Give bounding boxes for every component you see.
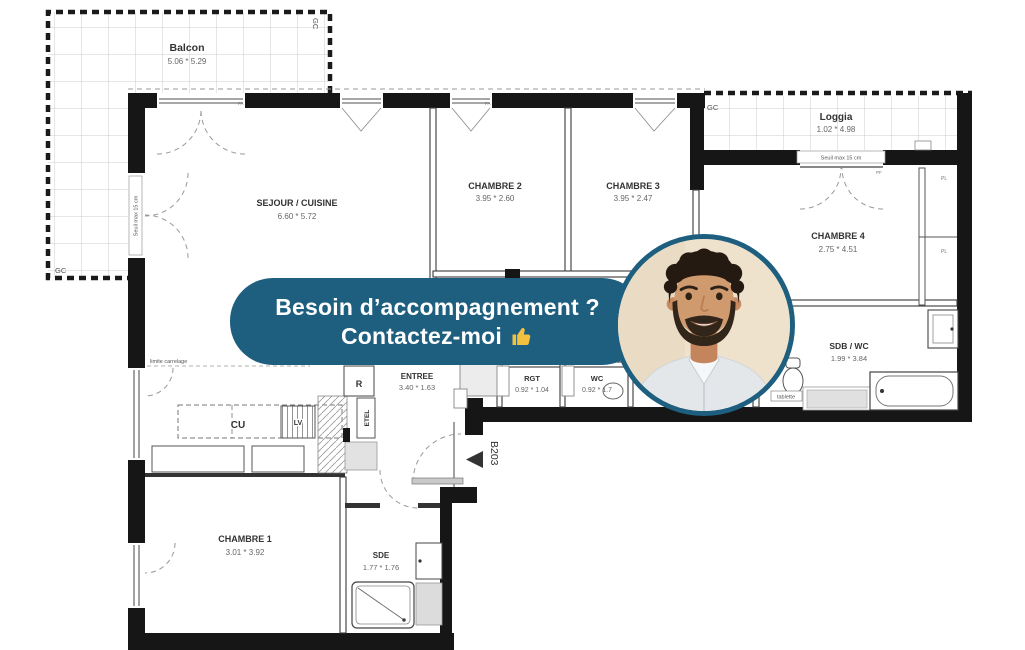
sdb-washbasin-bowl xyxy=(933,315,953,343)
chambre4-window-swing-left xyxy=(800,168,841,209)
shower-drain xyxy=(402,618,406,622)
loggia: Seuil max 15 cm Loggia 1.02 * 4.98 GC PF xyxy=(704,93,972,175)
balcony-door-swing-top xyxy=(145,173,188,216)
pf-window-label: PF xyxy=(876,170,882,175)
unit-number-label: B203 xyxy=(488,441,500,466)
sejour-name: SEJOUR / CUISINE xyxy=(256,198,337,208)
kitchen-counter-1 xyxy=(152,446,244,472)
toilet-bowl xyxy=(783,368,803,394)
balcony-door-swing-bottom xyxy=(145,215,188,258)
gc-label-balcony-bottom: GC xyxy=(55,266,67,275)
sdb-shelf xyxy=(807,390,867,408)
chambre2-dims: 3.95 * 2.60 xyxy=(476,194,515,203)
pl-label-1: PL xyxy=(941,176,947,182)
fa-window-label-1: FA xyxy=(238,101,244,106)
gc-label-balcony-top: GC xyxy=(311,18,320,30)
sde-washbasin-tap xyxy=(418,559,421,562)
balcony: Balcon 5.06 * 5.29 GC GC xyxy=(48,12,330,278)
balcony-door-threshold-label: Seuil max 15 cm xyxy=(134,195,140,236)
wall-right xyxy=(957,93,972,422)
entree-name: ENTREE xyxy=(401,372,434,381)
partition-chambre2-chambre3 xyxy=(565,108,571,274)
contact-banner[interactable]: Besoin d’accompagnement ? Contactez-moi xyxy=(230,278,645,365)
agent-photo xyxy=(613,234,795,416)
loggia-fixture xyxy=(915,141,931,150)
thumbs-up-icon xyxy=(510,324,534,348)
rgt-name: RGT xyxy=(524,374,540,383)
sde-dims: 1.77 * 1.76 xyxy=(363,563,399,572)
sde-door-swing xyxy=(380,470,418,508)
banner-line2: Contactez-moi xyxy=(341,322,502,350)
loggia-name: Loggia xyxy=(820,112,853,123)
chambre1-dims: 3.01 * 3.92 xyxy=(226,548,265,557)
tablette-label: tablette xyxy=(777,395,795,401)
chambre4-name: CHAMBRE 4 xyxy=(811,231,865,241)
banner-line1: Besoin d’accompagnement ? xyxy=(275,293,600,321)
bathtub-tap xyxy=(880,389,884,393)
sde-gray-unit xyxy=(416,583,442,625)
entree-dims: 3.40 * 1.63 xyxy=(399,383,435,392)
sde-name: SDE xyxy=(373,551,390,560)
kitchen-gray-unit xyxy=(345,442,377,470)
gc-label-loggia: GC xyxy=(707,103,719,112)
partition-sde-top-right xyxy=(418,503,440,508)
sejour-window-swing-right xyxy=(201,110,245,154)
partition-chambre1-top xyxy=(145,473,345,477)
left-window-swing xyxy=(145,368,173,396)
rgt-door-leaf xyxy=(497,366,509,396)
balcony-dims: 5.06 * 5.29 xyxy=(168,57,207,66)
balcony-name: Balcon xyxy=(169,42,204,54)
unit-entrance-arrow xyxy=(466,451,483,468)
entrance-door-leaf xyxy=(412,478,463,484)
chambre2-name: CHAMBRE 2 xyxy=(468,181,522,191)
wc-door-leaf xyxy=(562,366,574,396)
kitchen-wall-cap xyxy=(343,428,350,442)
floorplan-page: Balcon 5.06 * 5.29 GC GC Seuil max 15 cm… xyxy=(0,0,1025,650)
wc-name: WC xyxy=(591,374,604,383)
lv-label: LV xyxy=(294,420,303,427)
sdb-name: SDB / WC xyxy=(829,341,868,351)
sdb-washbasin-tap xyxy=(950,327,953,330)
etel-label: ETEL xyxy=(364,410,371,427)
wall-entrance-stub xyxy=(465,398,483,435)
entree-door-frame xyxy=(454,389,467,408)
limite-carrelage-label: limite carrelage xyxy=(150,359,187,365)
wall-bottom xyxy=(128,633,454,650)
wall-loggia-left xyxy=(690,93,704,190)
chambre3-name: CHAMBRE 3 xyxy=(606,181,660,191)
kitchen-hatched-zone xyxy=(318,396,347,473)
sejour-dims: 6.60 * 5.72 xyxy=(278,212,317,221)
loggia-threshold-label: Seuil max 15 cm xyxy=(821,156,862,162)
partition-sde-top-left xyxy=(345,503,380,508)
chambre1-name: CHAMBRE 1 xyxy=(218,534,272,544)
exterior-walls: Seuil max 15 cm xyxy=(128,89,972,650)
pl-label-2: PL xyxy=(941,249,947,255)
shower-room-fixtures xyxy=(352,543,442,628)
partition-chambre1-sde xyxy=(340,477,346,633)
rgt-dims: 0.92 * 1.04 xyxy=(515,387,549,394)
casement-marks xyxy=(342,108,675,131)
wc-dims: 0.92 * 1.7 xyxy=(582,387,612,394)
kitchen-upper-cabinets xyxy=(178,405,342,438)
sejour-window-swing-left xyxy=(157,110,201,154)
fa-window-label-2: FA xyxy=(485,101,491,106)
chambre4-dims: 2.75 * 4.51 xyxy=(819,245,858,254)
cu-label: CU xyxy=(231,420,245,431)
chambre3-dims: 3.95 * 2.47 xyxy=(614,194,653,203)
partitions xyxy=(145,108,957,633)
kitchen-counter-2 xyxy=(252,446,304,472)
agent-portrait-illustration xyxy=(618,239,790,411)
chambre1-window-swing xyxy=(145,543,175,573)
bathtub-inner xyxy=(876,376,953,406)
r-label: R xyxy=(356,379,363,389)
loggia-dims: 1.02 * 4.98 xyxy=(817,125,856,134)
sdb-dims: 1.99 * 3.84 xyxy=(831,354,867,363)
